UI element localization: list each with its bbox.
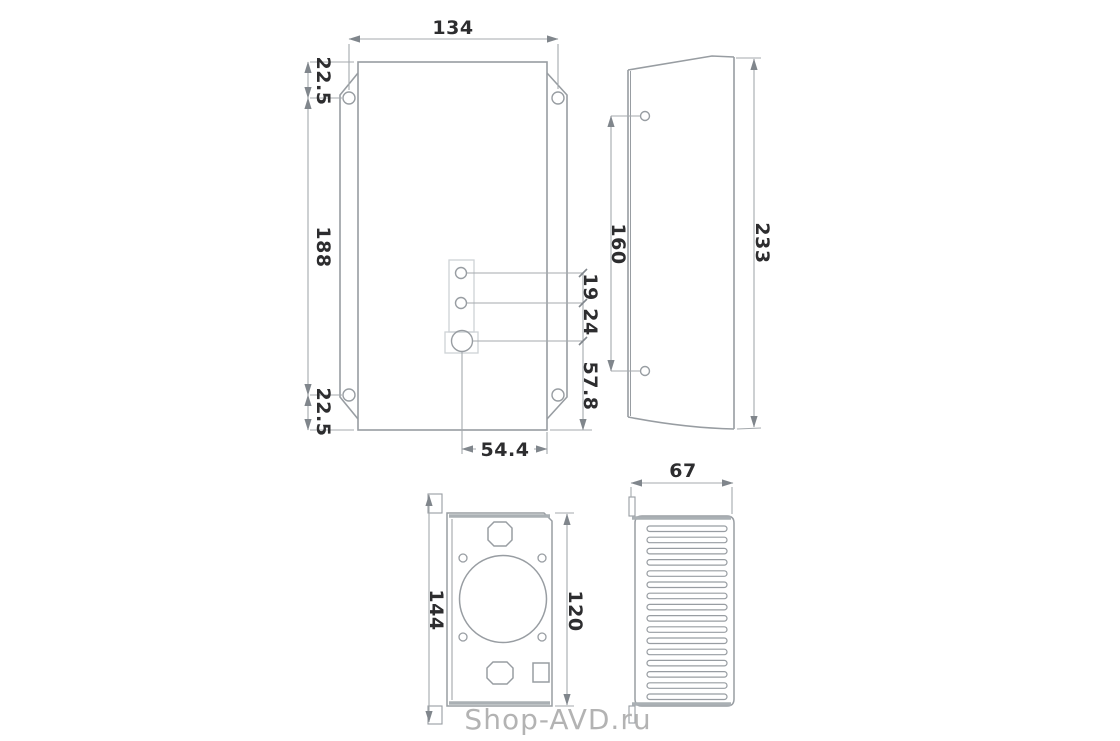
side-top-edge [628, 56, 734, 70]
dim-label-144: 144 [425, 589, 447, 630]
dim-label-57_8: 57.8 [579, 362, 601, 411]
side-view-dimensions [611, 58, 761, 429]
vent-slot [647, 627, 727, 633]
large-round-cutout [460, 556, 547, 643]
dimension-drawing: 134 22.5 188 22.5 19 24 57.8 54.4 160 23… [0, 0, 1120, 741]
vent-slot [647, 604, 727, 610]
dim-label-188: 188 [312, 226, 334, 267]
vent-slot [647, 616, 727, 622]
side-view [628, 56, 734, 429]
dim-label-160: 160 [607, 223, 629, 264]
side-hole-top [641, 112, 650, 121]
bottom-view-outline [447, 513, 552, 706]
vent-slot [647, 582, 727, 588]
vent-slot [647, 694, 727, 700]
vent-slot [647, 548, 727, 554]
bottom-view-tab-top [428, 494, 442, 513]
vent-slot [647, 649, 727, 655]
bottom-view-dim-labels: 144 120 [425, 589, 586, 631]
vent-slots [647, 526, 727, 700]
octagonal-cutout-top [488, 522, 512, 546]
dim-label-19: 19 [579, 273, 601, 300]
watermark-text: Shop-AVD.ru [464, 703, 651, 736]
dim-label-134: 134 [432, 17, 473, 39]
dim-label-24: 24 [579, 308, 601, 335]
bottom-view-tab-bottom [428, 706, 442, 724]
vent-slot [647, 672, 727, 678]
octagonal-cutout-bottom [487, 662, 513, 684]
back-view-dimensions [631, 483, 733, 514]
detail-hole-1 [456, 268, 467, 279]
vent-slot [647, 638, 727, 644]
screw-hole-4 [538, 633, 546, 641]
mounting-hole-bottom-left [343, 389, 355, 401]
vent-slot [647, 683, 727, 689]
side-bottom-edge [628, 417, 734, 429]
front-view-dimensions [308, 39, 592, 458]
side-view-dim-labels: 160 233 [607, 222, 773, 264]
mounting-hole-top-left [343, 92, 355, 104]
back-vent-view [629, 497, 734, 723]
mounting-hole-top-right [552, 92, 564, 104]
vent-slot [647, 593, 727, 599]
vent-slot [647, 560, 727, 566]
vent-view-tab-top [629, 497, 635, 516]
front-panel-outline [358, 62, 547, 430]
screw-hole-1 [459, 554, 467, 562]
vent-slot [647, 526, 727, 532]
screw-hole-3 [459, 633, 467, 641]
detail-hole-2 [456, 298, 467, 309]
front-view [340, 62, 567, 430]
screw-hole-2 [538, 554, 546, 562]
square-cutout [533, 663, 549, 682]
detail-slot-outline [449, 260, 474, 332]
mounting-hole-bottom-right [552, 389, 564, 401]
dim-label-22_5-top: 22.5 [312, 57, 334, 106]
left-mounting-flange [340, 73, 358, 419]
technical-drawing-page: 134 22.5 188 22.5 19 24 57.8 54.4 160 23… [0, 0, 1120, 741]
side-hole-bottom [641, 367, 650, 376]
back-view-dim-labels: 67 [669, 460, 696, 482]
vent-slot [647, 571, 727, 577]
right-mounting-flange [547, 73, 567, 419]
detail-hole-large [452, 331, 473, 352]
dim-label-67: 67 [669, 460, 696, 482]
dim-label-54_4: 54.4 [481, 439, 530, 461]
dim-label-22_5-bottom: 22.5 [312, 388, 334, 437]
vent-slot [647, 537, 727, 543]
dim-label-233: 233 [751, 222, 773, 263]
vent-slot [647, 660, 727, 666]
ext-line [737, 428, 761, 429]
dim-label-120: 120 [564, 590, 586, 631]
